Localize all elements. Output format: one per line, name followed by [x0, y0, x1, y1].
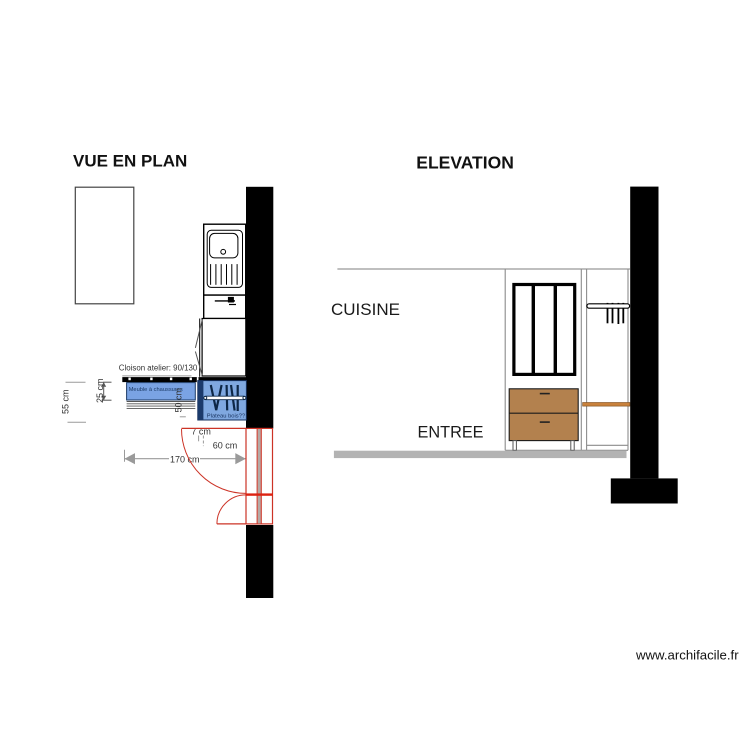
svg-text:www.archifacile.fr: www.archifacile.fr — [635, 648, 739, 663]
svg-text:55 cm: 55 cm — [61, 389, 71, 414]
svg-text:ENTREE: ENTREE — [418, 424, 484, 442]
svg-text:Plateau bois??: Plateau bois?? — [207, 413, 246, 419]
svg-text:170 cm: 170 cm — [170, 454, 200, 464]
svg-text:50 cm: 50 cm — [174, 388, 184, 413]
svg-text:25 cm: 25 cm — [95, 378, 105, 403]
svg-text:60 cm: 60 cm — [213, 441, 238, 451]
svg-text:VUE EN PLAN: VUE EN PLAN — [73, 152, 187, 171]
svg-text:ELEVATION: ELEVATION — [416, 153, 514, 173]
svg-text:Cloison atelier: 90/130: Cloison atelier: 90/130 — [119, 363, 198, 372]
svg-text:CUISINE: CUISINE — [331, 300, 400, 319]
